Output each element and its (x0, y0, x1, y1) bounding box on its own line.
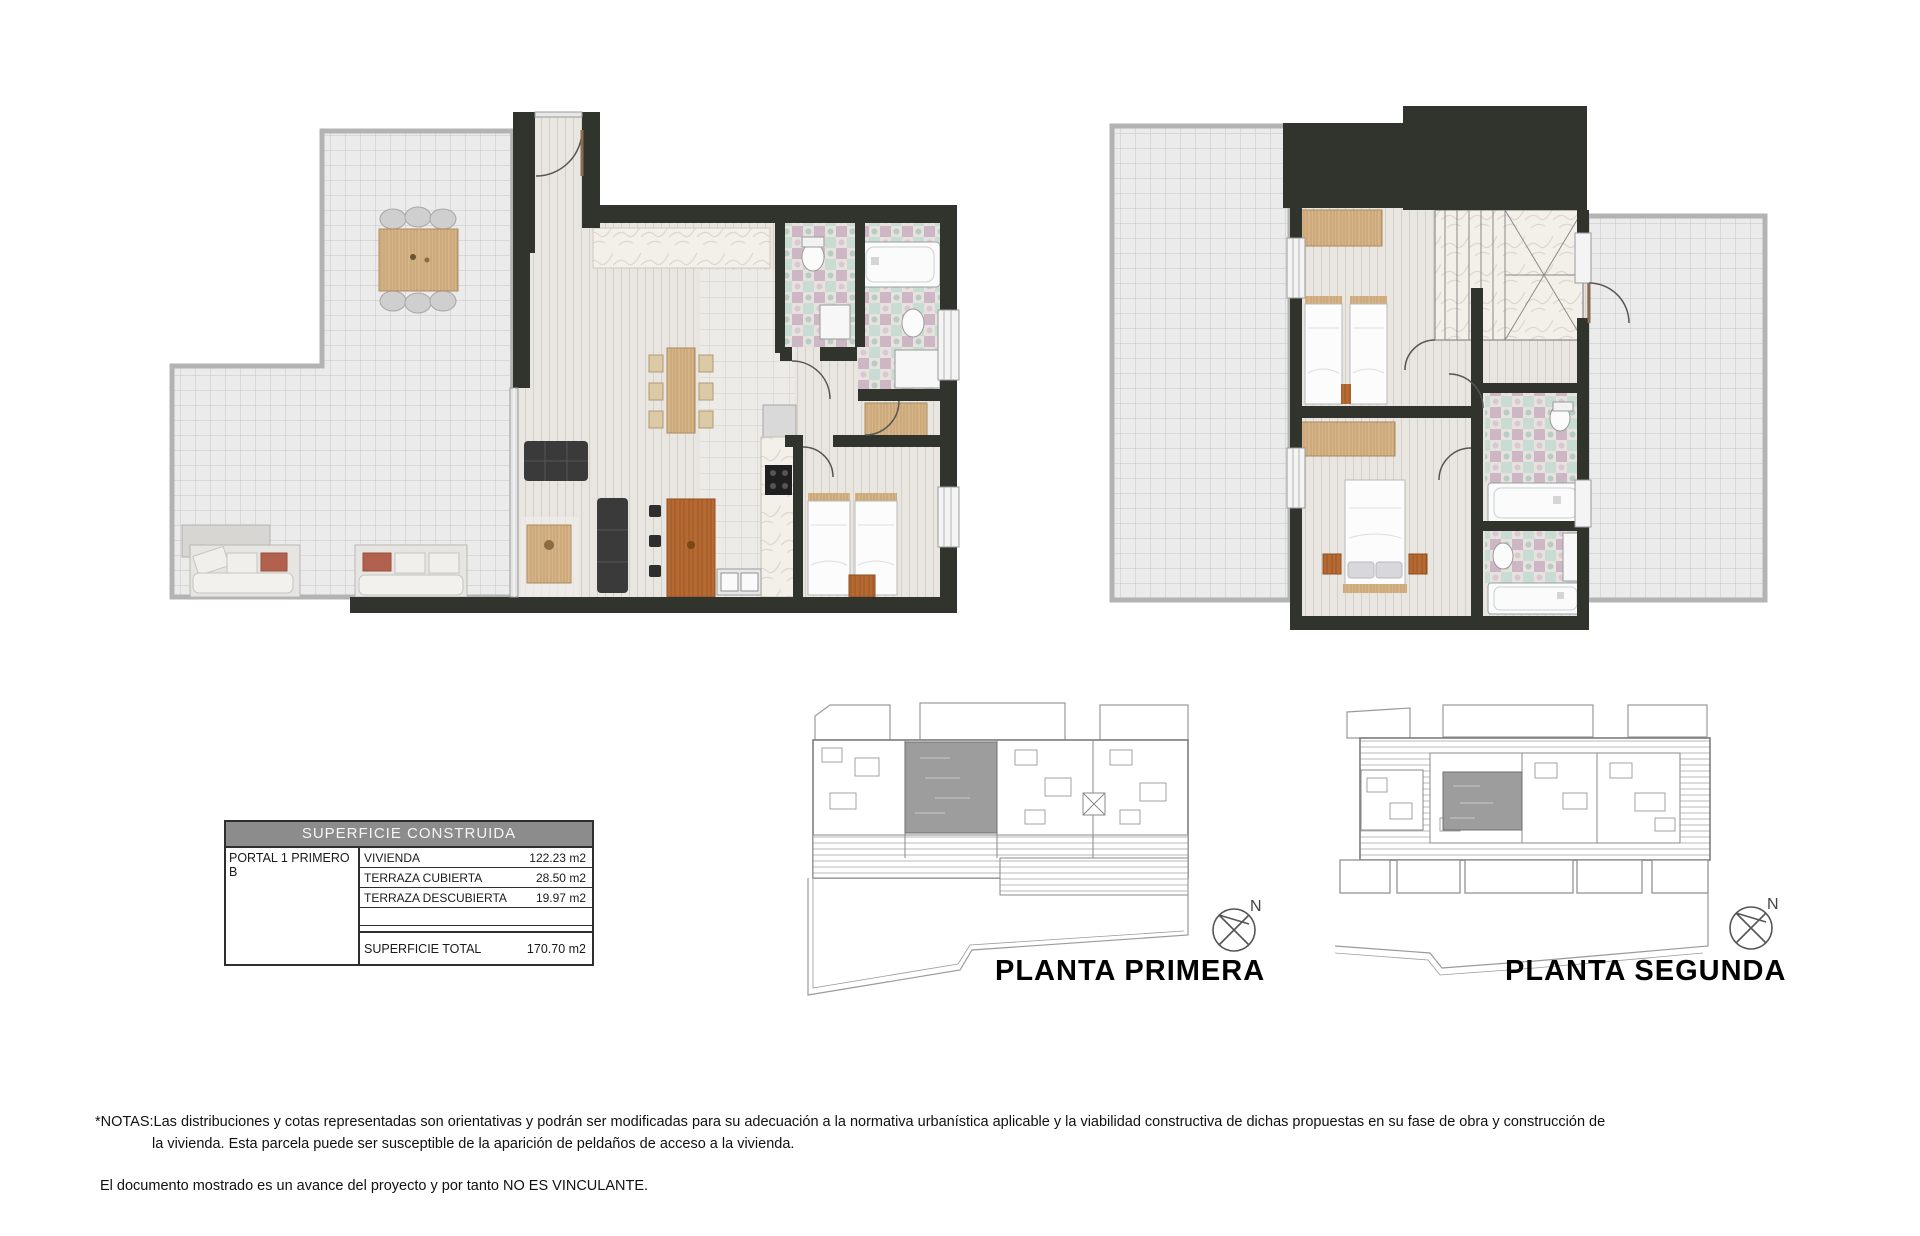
surface-table-header: SUPERFICIE CONSTRUIDA (226, 822, 592, 848)
row-value: 28.50 m2 (536, 871, 586, 885)
lower-terraces (1340, 860, 1708, 893)
stairs (1435, 210, 1583, 340)
floor-plan-sheet: N PLANTA PRIMERA (0, 0, 1920, 1236)
table-row-empty (360, 908, 592, 926)
row-label: TERRAZA CUBIERTA (364, 871, 482, 885)
row-value: 170.70 m2 (527, 942, 586, 956)
surface-table-unit-label: PORTAL 1 PRIMERO B (226, 848, 360, 964)
row-label: TERRAZA DESCUBIERTA (364, 891, 507, 905)
bathroom (1485, 393, 1583, 523)
outdoor-sofa-icon (355, 545, 467, 597)
bathroom (785, 223, 855, 347)
table-row: TERRAZA DESCUBIERTA 19.97 m2 (360, 888, 592, 908)
highlighted-unit (1443, 772, 1522, 830)
bathroom (1485, 531, 1583, 614)
balcony-outlines (815, 703, 1188, 740)
compass-icon (1730, 907, 1772, 949)
table-row: TERRAZA CUBIERTA 28.50 m2 (360, 868, 592, 888)
table-divider (360, 926, 592, 933)
outdoor-dining-set-icon (379, 207, 458, 313)
table-row-total: SUPERFICIE TOTAL 170.70 m2 (360, 933, 592, 964)
building-outline (1360, 738, 1710, 860)
notes-line-1: *NOTAS:Las distribuciones y cotas repres… (95, 1114, 1605, 1130)
building-outline (813, 740, 1188, 895)
site-plan-first-title: PLANTA PRIMERA (995, 955, 1265, 988)
sliding-glass-door (510, 388, 518, 597)
highlighted-unit (905, 742, 997, 833)
row-value: 19.97 m2 (536, 891, 586, 905)
floor-plan-second (1105, 88, 1775, 640)
site-plan-second-title: PLANTA SEGUNDA (1505, 955, 1786, 988)
floor-plan-first (165, 105, 965, 640)
notes-line-3: El documento mostrado es un avance del p… (100, 1178, 648, 1194)
row-label: SUPERFICIE TOTAL (364, 942, 481, 956)
surface-area-table: SUPERFICIE CONSTRUIDA PORTAL 1 PRIMERO B… (224, 820, 594, 966)
balcony-outlines (1347, 705, 1707, 738)
compass-north-label: N (1250, 898, 1262, 915)
row-label: VIVIENDA (364, 851, 420, 865)
row-value: 122.23 m2 (529, 851, 586, 865)
compass-north-label: N (1767, 896, 1779, 913)
table-row: VIVIENDA 122.23 m2 (360, 848, 592, 868)
notes-line-2: la vivienda. Esta parcela puede ser susc… (152, 1136, 794, 1152)
compass-icon (1213, 909, 1255, 951)
